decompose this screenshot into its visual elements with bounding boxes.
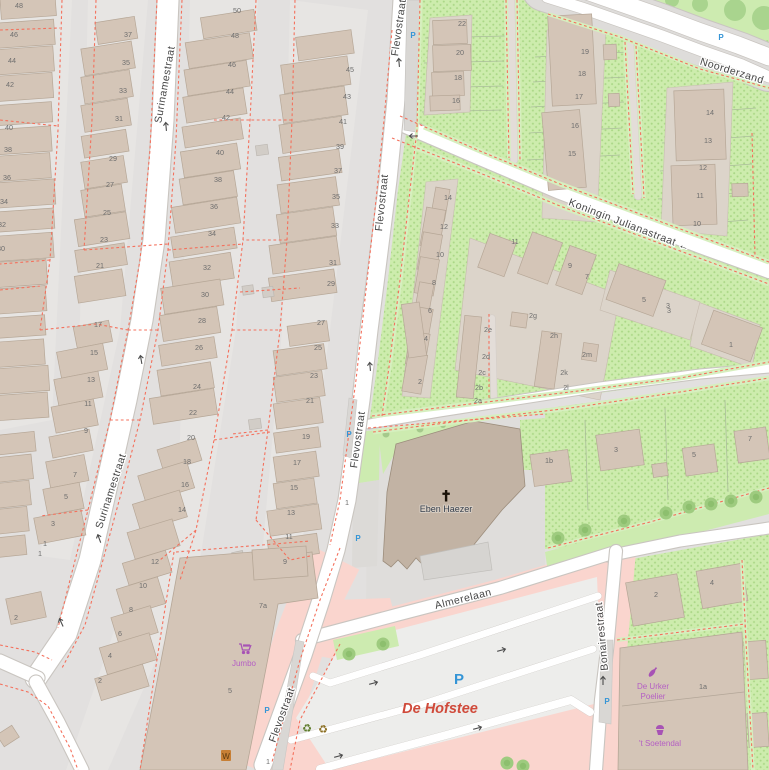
svg-text:45: 45 bbox=[346, 65, 354, 74]
svg-text:48: 48 bbox=[231, 31, 239, 40]
svg-text:P: P bbox=[410, 31, 416, 40]
svg-text:♻: ♻ bbox=[302, 723, 312, 735]
svg-text:28: 28 bbox=[198, 316, 206, 325]
svg-text:13: 13 bbox=[287, 508, 295, 517]
svg-text:44: 44 bbox=[8, 56, 16, 65]
svg-text:30: 30 bbox=[0, 244, 5, 253]
svg-text:De Urker: De Urker bbox=[637, 682, 669, 691]
svg-text:2a: 2a bbox=[474, 396, 482, 405]
svg-text:34: 34 bbox=[208, 229, 216, 238]
svg-text:7: 7 bbox=[585, 272, 589, 281]
svg-text:27: 27 bbox=[106, 180, 114, 189]
svg-text:13: 13 bbox=[87, 375, 95, 384]
svg-text:22: 22 bbox=[189, 408, 197, 417]
svg-text:12: 12 bbox=[151, 557, 159, 566]
svg-text:40: 40 bbox=[216, 148, 224, 157]
svg-text:Eben Haezer: Eben Haezer bbox=[420, 504, 473, 514]
svg-text:16: 16 bbox=[181, 480, 189, 489]
svg-text:31: 31 bbox=[329, 258, 337, 267]
svg-text:31: 31 bbox=[115, 114, 123, 123]
svg-text:18: 18 bbox=[578, 69, 586, 78]
svg-text:5: 5 bbox=[692, 450, 696, 459]
svg-text:2: 2 bbox=[418, 377, 422, 386]
svg-text:18: 18 bbox=[183, 457, 191, 466]
svg-text:38: 38 bbox=[4, 145, 12, 154]
svg-text:27: 27 bbox=[317, 318, 325, 327]
svg-text:46: 46 bbox=[228, 60, 236, 69]
svg-text:1: 1 bbox=[345, 498, 349, 507]
svg-text:18: 18 bbox=[454, 73, 462, 82]
svg-text:40: 40 bbox=[5, 123, 13, 132]
svg-text:25: 25 bbox=[314, 343, 322, 352]
svg-text:19: 19 bbox=[302, 432, 310, 441]
svg-text:1b: 1b bbox=[545, 456, 553, 465]
svg-text:42: 42 bbox=[6, 80, 14, 89]
svg-text:21: 21 bbox=[96, 261, 104, 270]
svg-text:37: 37 bbox=[334, 166, 342, 175]
svg-text:35: 35 bbox=[332, 192, 340, 201]
svg-text:36: 36 bbox=[210, 202, 218, 211]
svg-text:15: 15 bbox=[90, 348, 98, 357]
svg-text:29: 29 bbox=[109, 154, 117, 163]
svg-text:2b: 2b bbox=[475, 383, 483, 392]
svg-text:9: 9 bbox=[568, 261, 572, 270]
svg-text:32: 32 bbox=[0, 220, 6, 229]
svg-text:5: 5 bbox=[642, 295, 646, 304]
svg-text:8: 8 bbox=[432, 278, 436, 287]
svg-text:9: 9 bbox=[84, 426, 88, 435]
svg-text:2m: 2m bbox=[582, 350, 592, 359]
svg-text:17: 17 bbox=[575, 92, 583, 101]
svg-text:34: 34 bbox=[0, 197, 8, 206]
svg-text:10: 10 bbox=[139, 581, 147, 590]
svg-text:2c: 2c bbox=[478, 368, 486, 377]
svg-text:11: 11 bbox=[84, 399, 91, 408]
svg-text:3: 3 bbox=[51, 519, 55, 528]
svg-text:33: 33 bbox=[331, 221, 339, 230]
svg-text:19: 19 bbox=[581, 47, 589, 56]
svg-text:23: 23 bbox=[310, 371, 318, 380]
svg-text:13: 13 bbox=[704, 136, 712, 145]
svg-text:25: 25 bbox=[103, 208, 111, 217]
svg-text:P: P bbox=[346, 430, 352, 439]
svg-text:1: 1 bbox=[38, 549, 42, 558]
svg-text:2h: 2h bbox=[550, 331, 558, 340]
svg-text:11: 11 bbox=[285, 532, 292, 541]
svg-text:P: P bbox=[355, 534, 361, 543]
svg-text:4: 4 bbox=[424, 334, 428, 343]
svg-text:29: 29 bbox=[327, 279, 335, 288]
svg-text:1: 1 bbox=[266, 757, 270, 766]
svg-text:41: 41 bbox=[339, 117, 347, 126]
svg-text:'t Soetendal: 't Soetendal bbox=[639, 739, 681, 748]
svg-text:14: 14 bbox=[178, 505, 186, 514]
svg-text:32: 32 bbox=[203, 263, 211, 272]
svg-text:♻: ♻ bbox=[318, 724, 328, 736]
svg-text:43: 43 bbox=[343, 92, 351, 101]
svg-text:12: 12 bbox=[440, 222, 448, 231]
svg-text:11: 11 bbox=[696, 191, 703, 200]
svg-text:23: 23 bbox=[100, 235, 108, 244]
svg-text:15: 15 bbox=[290, 483, 298, 492]
svg-text:P: P bbox=[718, 33, 724, 42]
svg-text:2: 2 bbox=[654, 590, 658, 599]
svg-text:2d: 2d bbox=[482, 352, 490, 361]
svg-text:P: P bbox=[604, 697, 610, 706]
svg-text:7: 7 bbox=[748, 434, 752, 443]
svg-text:12: 12 bbox=[699, 163, 707, 172]
svg-text:46: 46 bbox=[10, 30, 18, 39]
svg-text:4: 4 bbox=[710, 578, 714, 587]
svg-text:2: 2 bbox=[98, 676, 102, 685]
svg-text:17: 17 bbox=[94, 320, 102, 329]
svg-text:7a: 7a bbox=[259, 601, 267, 610]
svg-text:6: 6 bbox=[428, 306, 432, 315]
svg-text:5: 5 bbox=[228, 686, 232, 695]
svg-text:20: 20 bbox=[187, 433, 195, 442]
svg-text:50: 50 bbox=[233, 6, 241, 15]
svg-text:De Hofstee: De Hofstee bbox=[402, 701, 478, 717]
svg-text:2: 2 bbox=[14, 613, 18, 622]
svg-text:11: 11 bbox=[511, 237, 518, 246]
svg-text:2k: 2k bbox=[560, 368, 568, 377]
svg-text:17: 17 bbox=[293, 458, 301, 467]
svg-text:37: 37 bbox=[124, 30, 132, 39]
svg-text:39: 39 bbox=[336, 142, 344, 151]
svg-text:16: 16 bbox=[452, 96, 460, 105]
svg-text:20: 20 bbox=[456, 48, 464, 57]
svg-text:24: 24 bbox=[193, 382, 201, 391]
svg-text:48: 48 bbox=[15, 1, 23, 10]
svg-text:1: 1 bbox=[43, 539, 47, 548]
svg-text:4: 4 bbox=[108, 651, 112, 660]
svg-text:15: 15 bbox=[568, 149, 576, 158]
svg-text:35: 35 bbox=[122, 58, 130, 67]
svg-text:P: P bbox=[264, 706, 270, 715]
svg-text:21: 21 bbox=[306, 396, 314, 405]
svg-text:9: 9 bbox=[283, 557, 287, 566]
svg-text:26: 26 bbox=[195, 343, 203, 352]
svg-text:3: 3 bbox=[614, 445, 618, 454]
svg-text:16: 16 bbox=[571, 121, 579, 130]
svg-text:1a: 1a bbox=[699, 682, 707, 691]
svg-text:P: P bbox=[454, 671, 464, 688]
svg-text:Jumbo: Jumbo bbox=[232, 659, 257, 668]
svg-text:Poelier: Poelier bbox=[641, 692, 666, 701]
svg-text:3: 3 bbox=[666, 301, 670, 310]
svg-text:38: 38 bbox=[214, 175, 222, 184]
svg-text:33: 33 bbox=[119, 86, 127, 95]
svg-text:5: 5 bbox=[64, 492, 68, 501]
svg-text:14: 14 bbox=[706, 108, 714, 117]
svg-text:10: 10 bbox=[693, 219, 701, 228]
svg-text:36: 36 bbox=[3, 173, 11, 182]
svg-text:1: 1 bbox=[729, 340, 733, 349]
svg-text:14: 14 bbox=[444, 193, 452, 202]
svg-text:2e: 2e bbox=[484, 325, 492, 334]
svg-text:7: 7 bbox=[73, 470, 77, 479]
svg-text:22: 22 bbox=[458, 19, 466, 28]
svg-text:44: 44 bbox=[226, 87, 234, 96]
svg-text:8: 8 bbox=[129, 605, 133, 614]
svg-text:42: 42 bbox=[222, 113, 230, 122]
svg-text:2l: 2l bbox=[563, 383, 569, 392]
svg-text:W: W bbox=[222, 752, 230, 761]
svg-text:10: 10 bbox=[436, 250, 444, 259]
svg-text:6: 6 bbox=[118, 629, 122, 638]
svg-text:2g: 2g bbox=[529, 311, 537, 320]
svg-text:30: 30 bbox=[201, 290, 209, 299]
